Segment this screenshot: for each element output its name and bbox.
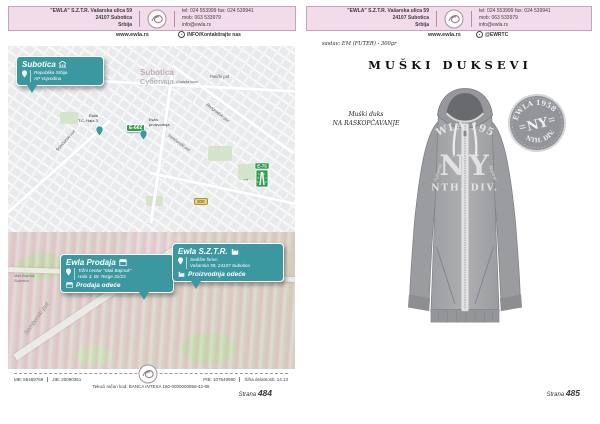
website-link[interactable]: www.ewla.rs xyxy=(428,32,461,38)
page-number-value: 484 xyxy=(258,388,272,398)
info-label: INFO/Kontaktirajte nas xyxy=(187,32,241,38)
company-logo-icon xyxy=(444,9,464,29)
map-pin-factory-label: Ewla proizvodnja xyxy=(149,118,169,128)
company-line1: "EWLA" S.Z.T.R. Vašarska ulica 59 xyxy=(347,8,429,15)
city-card-title-text: Subotica xyxy=(22,60,56,69)
road-label-palicki: Palićki put xyxy=(210,74,229,79)
contact-phone: tel: 024 553999 fax: 024 539941 xyxy=(479,8,551,15)
sztr-address: Sedište firme: Vašarska 59, 24107 Suboti… xyxy=(186,257,250,269)
right-header-bar: "EWLA" S.Z.T.R. Vašarska ulica 59 24107 … xyxy=(306,6,592,31)
footer-separator xyxy=(47,377,48,382)
route-badge-300: 300 xyxy=(194,198,208,205)
map-pin-shop-label: Ewla T.C. Hala 3 xyxy=(78,114,98,124)
aerial-photo[interactable]: Mali Bajmok Subotica Somborski put Ewla … xyxy=(8,232,295,369)
header-divider xyxy=(139,11,140,27)
footer-mb: MB: 55469769 xyxy=(14,377,43,382)
poi-city-hall: Gradska kuća xyxy=(176,80,198,84)
city-hall-icon xyxy=(59,61,66,68)
company-line1: "EWLA" S.Z.T.R. Vašarska ulica 59 xyxy=(50,8,132,15)
prodaja-card-pointer xyxy=(139,292,149,300)
website-link[interactable]: www.ewla.rs xyxy=(116,32,149,38)
info-icon xyxy=(178,31,185,38)
right-page: "EWLA" S.Z.T.R. Vašarska ulica 59 24107 … xyxy=(300,0,600,424)
company-address: "EWLA" S.Z.T.R. Vašarska ulica 59 24107 … xyxy=(50,8,132,28)
factory-icon xyxy=(178,271,185,277)
social-handle-link[interactable]: @EWRTC xyxy=(476,31,508,38)
header-divider xyxy=(436,11,437,27)
district-label: Mali Bajmok Subotica xyxy=(14,274,35,284)
map-pin-shop[interactable] xyxy=(96,126,103,136)
city-card-region: Republika Srbija AP Vojvodina xyxy=(30,70,67,82)
pin-label-line: proizvodnja xyxy=(149,123,169,128)
company-contacts: tel: 024 553999 fax: 024 539941 mob: 063… xyxy=(479,8,551,28)
prodaja-title-text: Ewla Prodaja xyxy=(66,258,116,267)
page-number-value: 485 xyxy=(566,388,580,398)
company-contacts: tel: 024 553999 fax: 024 539941 mob: 063… xyxy=(182,8,254,28)
motorway-arrow-icon: → xyxy=(242,174,250,183)
map-park xyxy=(60,112,78,124)
prodaja-card-title: Ewla Prodaja xyxy=(66,258,168,267)
city-card[interactable]: Subotica Republika Srbija AP Vojvodina xyxy=(16,56,104,86)
svg-text:E-75: E-75 xyxy=(257,164,267,169)
product-label-line2: NA RASKOPČAVANJE xyxy=(326,119,406,128)
product-label: Muški duks NA RASKOPČAVANJE xyxy=(326,110,406,128)
brand-badge: EWLA 1958 NY NTH. DIV. xyxy=(506,92,568,154)
category-title: MUŠKI DUKSEVI xyxy=(300,58,600,72)
print-bottom-text: NTH. DIV. xyxy=(431,183,499,194)
header-divider xyxy=(174,11,175,27)
contact-phone: tel: 024 553999 fax: 024 539941 xyxy=(182,8,254,15)
map-pin-factory[interactable] xyxy=(140,130,147,140)
sztr-tag: Proizvodnja odeće xyxy=(178,271,278,278)
print-letter-y: Y xyxy=(468,149,489,182)
location-pin-icon xyxy=(66,268,71,276)
print-letter-n: N xyxy=(440,149,465,182)
right-page-number: Strana 485 xyxy=(508,388,580,398)
city-card-title: Subotica xyxy=(22,60,98,69)
prodaja-tag: Prodaja odeće xyxy=(66,282,168,289)
header-divider xyxy=(471,11,472,27)
info-contact-link[interactable]: INFO/Kontaktirajte nas xyxy=(178,31,241,38)
prodaja-address: Tržni centar "Mali Bajmok" Hala 3, Bc Te… xyxy=(74,268,131,280)
pin-label-line: T.C. Hala 3 xyxy=(78,119,98,124)
company-line3: Srbija xyxy=(50,22,132,29)
company-line3: Srbija xyxy=(347,22,429,29)
contact-mobile: mob: 063 533979 xyxy=(479,15,551,22)
company-address: "EWLA" S.Z.T.R. Vašarska ulica 59 24107 … xyxy=(347,8,429,28)
sztr-addr-line2: Vašarska 59, 24107 Subotica xyxy=(190,263,250,269)
prodaja-addr-line2: Hala 3, Bc Tezge 31/23 xyxy=(78,274,131,280)
left-page: "EWLA" S.Z.T.R. Vašarska ulica 59 24107 … xyxy=(0,0,300,424)
product-label-line1: Muški duks xyxy=(326,110,406,119)
left-page-number: Strana 484 xyxy=(200,388,272,398)
sztr-tag-text: Proizvodnja odeće xyxy=(188,271,245,278)
shop-icon xyxy=(119,259,127,266)
page-word: Strana xyxy=(238,392,256,398)
city-card-pointer xyxy=(27,85,37,93)
company-logo-icon xyxy=(147,9,167,29)
city-label-cyrillic: Суботица xyxy=(140,77,174,86)
city-label-latin: Subotica xyxy=(140,68,174,77)
prodaja-tag-text: Prodaja odeće xyxy=(76,282,120,289)
street-map[interactable]: Subotica Суботица Gradska kuća Palićki p… xyxy=(8,46,295,232)
sztr-title-text: Ewla S.Z.T.R. xyxy=(178,247,228,256)
material-note: sastav: EM (FUTER) - 300gr xyxy=(322,41,397,47)
sztr-card-pointer xyxy=(191,281,201,289)
company-line2: 24107 Subotica xyxy=(50,15,132,22)
company-line2: 24107 Subotica xyxy=(347,15,429,22)
footer-separator xyxy=(239,377,240,382)
social-icon xyxy=(476,31,483,38)
social-handle-label: @EWRTC xyxy=(485,32,508,38)
contact-mobile: mob: 063 533979 xyxy=(182,15,254,22)
location-pin-icon xyxy=(22,70,27,78)
region-line2: AP Vojvodina xyxy=(34,76,67,82)
footer-activity-code: Šifra delatnosti: 14.13 xyxy=(244,377,288,382)
sztr-card-title: Ewla S.Z.T.R. xyxy=(178,247,278,256)
footer-pib: PIB: 107549990 xyxy=(203,377,235,382)
contact-email[interactable]: info@ewla.rs xyxy=(479,22,551,29)
factory-icon xyxy=(231,248,239,255)
footer-registry-row: MB: 55469769 JIB: 20090351 PIB: 10754999… xyxy=(14,377,288,382)
location-pin-icon xyxy=(178,257,183,265)
motorway-e75-icon: E-75 xyxy=(254,162,270,188)
page-word: Strana xyxy=(546,392,564,398)
prodaja-card[interactable]: Ewla Prodaja Tržni centar "Mali Bajmok" … xyxy=(60,254,174,293)
map-park xyxy=(208,146,232,161)
store-icon xyxy=(66,282,73,288)
footer-jib: JIB: 20090351 xyxy=(52,377,81,382)
sztr-card[interactable]: Ewla S.Z.T.R. Sedište firme: Vašarska 59… xyxy=(172,243,284,282)
left-header-bar: "EWLA" S.Z.T.R. Vašarska ulica 59 24107 … xyxy=(8,6,296,31)
contact-email[interactable]: info@ewla.rs xyxy=(182,22,254,29)
district-line2: Subotica xyxy=(14,279,35,284)
